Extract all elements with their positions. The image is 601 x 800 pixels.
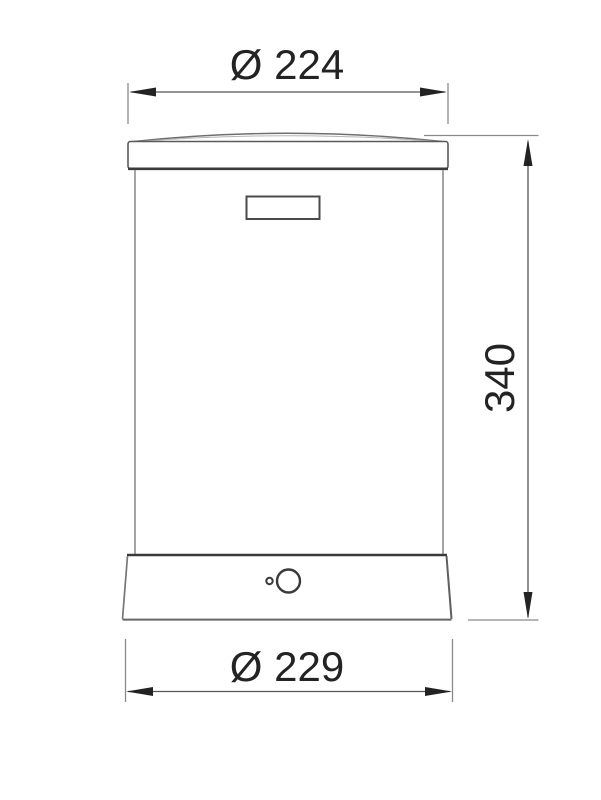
lid-dome-arc	[129, 133, 447, 142]
dimension-top-diameter: Ø 224	[128, 41, 448, 124]
lid	[128, 133, 448, 169]
technical-drawing-page: Ø 224	[0, 0, 601, 800]
body	[135, 170, 443, 554]
arrow-up-icon	[524, 139, 533, 166]
appliance-outline	[123, 133, 452, 619]
label-plate	[247, 197, 320, 220]
arrow-right-icon	[425, 687, 452, 696]
base-right-edge	[447, 556, 452, 619]
arrow-right-icon	[420, 88, 447, 97]
base-left-edge	[123, 556, 128, 619]
lid-rim	[128, 142, 448, 169]
dimension-height: 340	[424, 136, 539, 621]
base	[123, 555, 452, 620]
indicator-dot	[266, 578, 272, 584]
top-diameter-label: Ø 224	[230, 41, 344, 88]
power-knob	[277, 570, 300, 593]
arrow-left-icon	[126, 687, 153, 696]
dimension-bottom-diameter: Ø 229	[126, 639, 453, 702]
height-label: 340	[476, 343, 523, 413]
arrow-left-icon	[129, 88, 156, 97]
technical-drawing: Ø 224	[0, 0, 601, 800]
arrow-down-icon	[524, 592, 533, 619]
bottom-diameter-label: Ø 229	[230, 643, 344, 690]
